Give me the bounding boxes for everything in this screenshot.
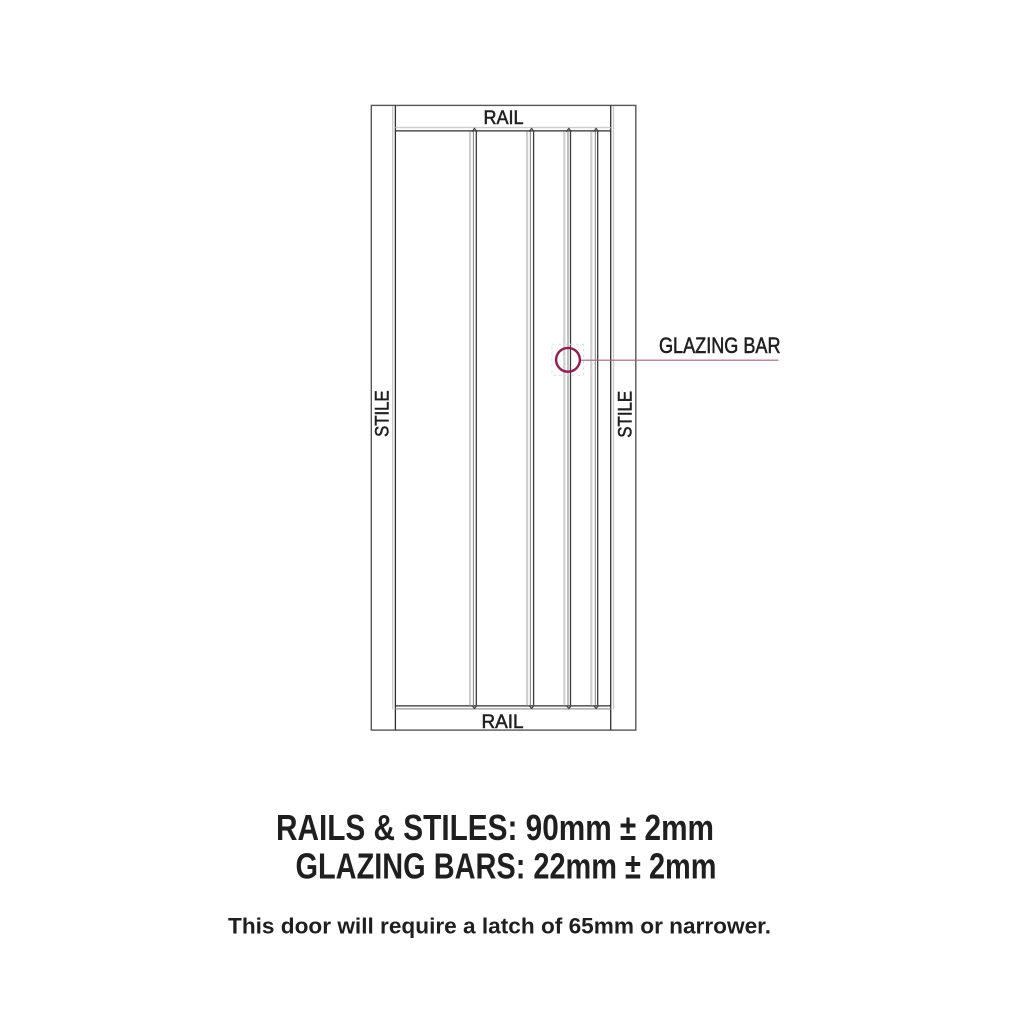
svg-text:This door will require a latch: This door will require a latch of 65mm o… xyxy=(228,913,771,938)
svg-text:RAILS & STILES: 90mm ± 2mm: RAILS & STILES: 90mm ± 2mm xyxy=(276,807,714,848)
svg-text:GLAZING BARS: 22mm ± 2mm: GLAZING BARS: 22mm ± 2mm xyxy=(296,845,717,886)
svg-text:STILE: STILE xyxy=(372,390,394,437)
svg-text:RAIL: RAIL xyxy=(484,107,524,129)
svg-text:GLAZING BAR: GLAZING BAR xyxy=(659,333,781,358)
svg-text:STILE: STILE xyxy=(614,391,636,438)
svg-text:RAIL: RAIL xyxy=(482,711,524,733)
